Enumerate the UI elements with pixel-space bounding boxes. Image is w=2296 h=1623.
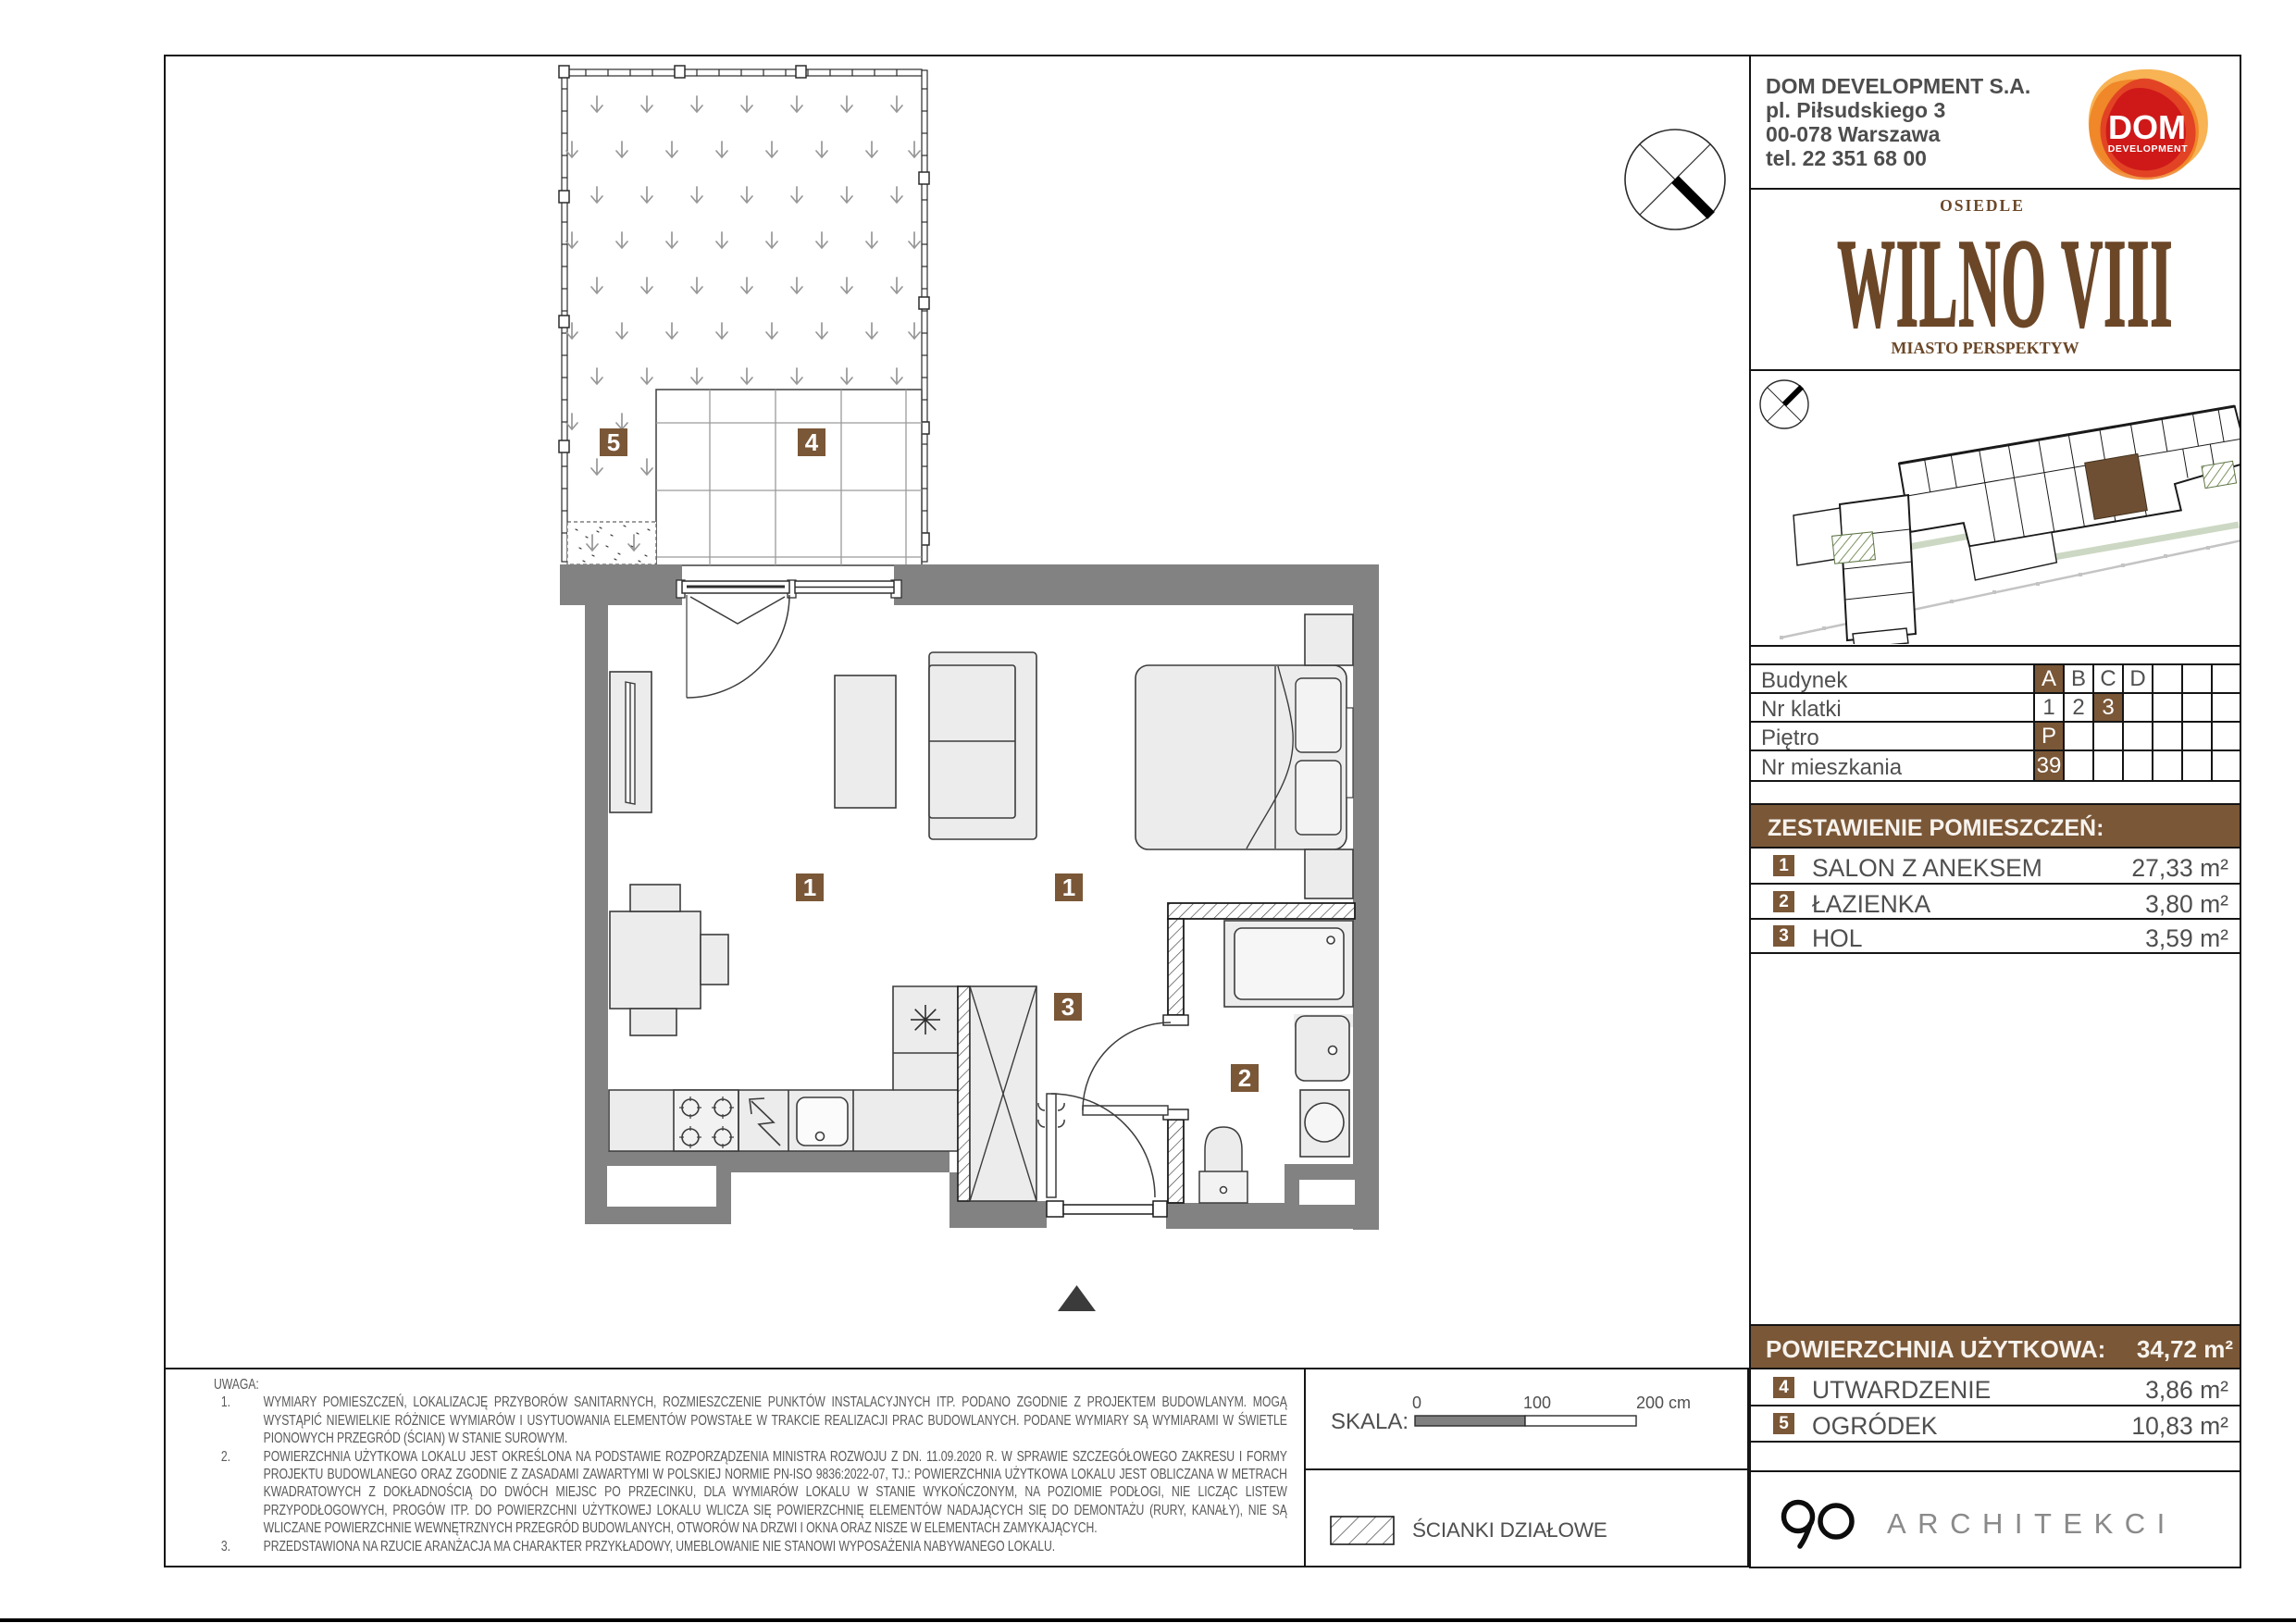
svg-text:DOM: DOM	[2108, 108, 2186, 146]
svg-text:3: 3	[1061, 993, 1074, 1021]
svg-text:1: 1	[1062, 873, 1075, 901]
svg-text:4: 4	[805, 428, 819, 456]
svg-text:5: 5	[607, 428, 620, 456]
svg-text:2: 2	[1238, 1064, 1251, 1092]
svg-text:1: 1	[803, 873, 816, 901]
svg-text:DEVELOPMENT: DEVELOPMENT	[2108, 143, 2189, 155]
